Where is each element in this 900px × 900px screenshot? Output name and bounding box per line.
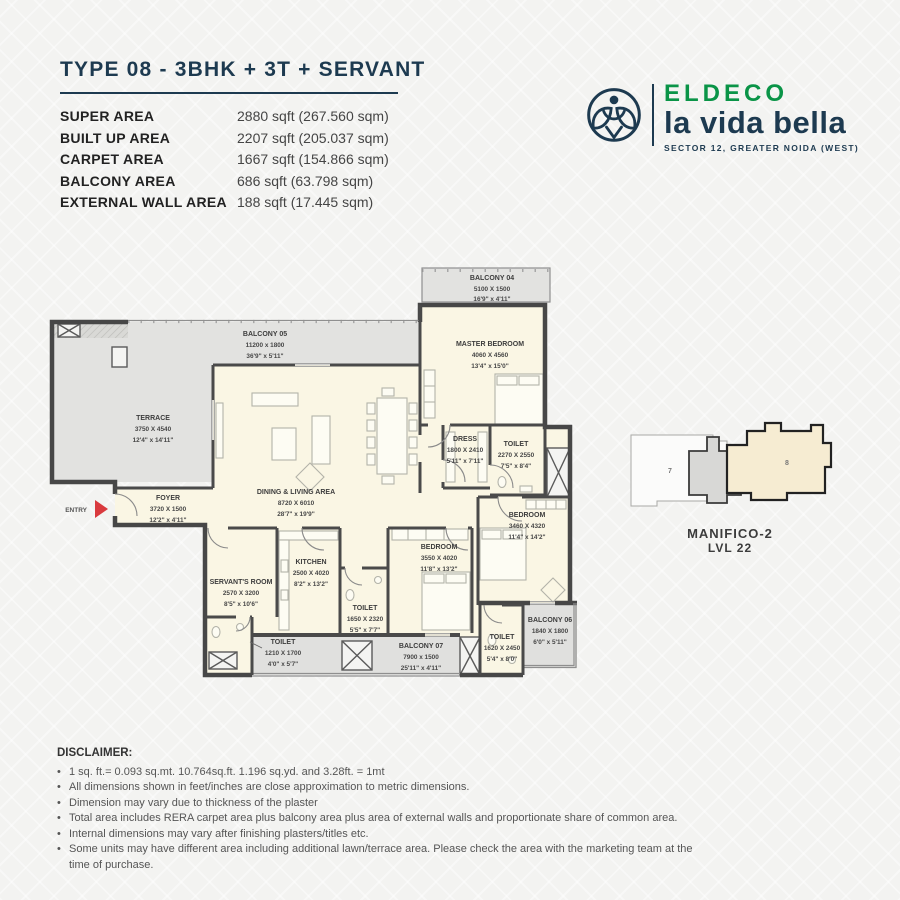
- room-name: TOILET: [504, 441, 529, 448]
- disclaimer-text: Total area includes RERA carpet area plu…: [69, 811, 677, 827]
- logo-tagline: SECTOR 12, GREATER NOIDA (WEST): [664, 143, 859, 153]
- room-dim-mm: 3550 X 4020: [421, 555, 458, 562]
- room-name: SERVANT'S ROOM: [210, 579, 273, 586]
- area-value: 686 sqft (63.798 sqm): [237, 171, 373, 193]
- disclaimer-text: All dimensions shown in feet/inches are …: [69, 780, 469, 796]
- page-title: TYPE 08 - 3BHK + 3T + SERVANT: [60, 58, 425, 82]
- keyplan-unit-8-number: 8: [785, 460, 789, 467]
- room-name: BEDROOM: [509, 512, 546, 519]
- area-label: SUPER AREA: [60, 106, 237, 128]
- room-name: MASTER BEDROOM: [456, 341, 524, 348]
- room-dim-mm: 7900 x 1500: [403, 654, 439, 661]
- disclaimer-text: 1 sq. ft.= 0.093 sq.mt. 10.764sq.ft. 1.1…: [69, 765, 385, 781]
- room-dim-ft: 4'0" x 5'7": [268, 661, 298, 668]
- room-name: BEDROOM: [421, 544, 458, 551]
- room-dim-mm: 1650 X 2320: [347, 616, 384, 623]
- disclaimer-item: •Dimension may vary due to thickness of …: [57, 796, 697, 812]
- area-value: 2207 sqft (205.037 sqm): [237, 128, 389, 150]
- area-row: BUILT UP AREA2207 sqft (205.037 sqm): [60, 128, 480, 150]
- room-dim-mm: 1620 X 2450: [484, 645, 521, 652]
- room-dim-mm: 2270 X 2550: [498, 452, 535, 459]
- disclaimer-heading: DISCLAIMER:: [57, 746, 697, 762]
- room-dim-ft: 36'9" x 5'11": [246, 353, 283, 360]
- room-dim-ft: 13'4" x 15'0": [471, 363, 509, 370]
- room-dim-ft: 8'5" x 10'6": [224, 601, 258, 608]
- area-row: CARPET AREA1667 sqft (154.866 sqm): [60, 149, 480, 171]
- entry-label: ENTRY: [65, 507, 87, 514]
- area-label: BUILT UP AREA: [60, 128, 237, 150]
- room-name: FOYER: [156, 495, 180, 502]
- room-name: TOILET: [271, 639, 296, 646]
- floor-plan: ENTRY BALCONY 05 11200 x 1800 36'9" x 5'…: [40, 250, 600, 700]
- keyplan-unit-8-highlight: [727, 423, 831, 500]
- bullet-icon: •: [57, 842, 69, 873]
- room-name: BALCONY 05: [243, 331, 287, 338]
- room-name: TOILET: [490, 634, 515, 641]
- area-table: SUPER AREA2880 sqft (267.560 sqm) BUILT …: [60, 106, 480, 214]
- disclaimer-text: Internal dimensions may vary after finis…: [69, 827, 369, 843]
- room-dim-mm: 1800 X 2410: [447, 447, 484, 454]
- room-dim-ft: 5'11" x 7'11": [447, 458, 484, 465]
- disclaimer-item: •Total area includes RERA carpet area pl…: [57, 811, 697, 827]
- disclaimer-item: •Some units may have different area incl…: [57, 842, 697, 873]
- room-dim-mm: 1840 X 1800: [532, 628, 569, 635]
- room-dim-ft: 11'4" x 14'2": [508, 534, 545, 541]
- area-value: 1667 sqft (154.866 sqm): [237, 149, 389, 171]
- room-dim-ft: 8'2" x 13'2": [294, 581, 328, 588]
- room-label-terrace: TERRACE 3750 X 4540 12'4" x 14'11": [133, 415, 174, 444]
- entry-marker: ENTRY: [65, 500, 108, 518]
- title-underline: [60, 92, 398, 94]
- key-plan: 7 8 MANIFICO-2 LVL 22: [615, 405, 845, 555]
- area-label: CARPET AREA: [60, 149, 237, 171]
- room-dim-ft: 12'2" x 4'11": [149, 517, 186, 524]
- room-dim-mm: 3750 X 4540: [135, 426, 172, 433]
- logo-brand: ELDECO: [664, 82, 859, 106]
- room-dim-ft: 5'4" x 8'0": [487, 656, 517, 663]
- room-name: BALCONY 04: [470, 275, 514, 282]
- logo-divider: [652, 84, 654, 146]
- room-label-balcony-04: BALCONY 04 5100 X 1500 16'9" x 4'11": [470, 275, 514, 303]
- room-dim-mm: 8720 X 6010: [278, 500, 315, 507]
- room-dim-ft: 5'5" x 7'7": [350, 627, 380, 634]
- room-name: TERRACE: [136, 415, 170, 422]
- area-row: EXTERNAL WALL AREA188 sqft (17.445 sqm): [60, 192, 480, 214]
- lotus-emblem-icon: [584, 82, 644, 151]
- disclaimer-item: •Internal dimensions may vary after fini…: [57, 827, 697, 843]
- room-name: TOILET: [353, 605, 378, 612]
- room-dim-mm: 1210 X 1700: [265, 650, 302, 657]
- area-value: 2880 sqft (267.560 sqm): [237, 106, 389, 128]
- disclaimer-item: •All dimensions shown in feet/inches are…: [57, 780, 697, 796]
- room-name: KITCHEN: [295, 559, 326, 566]
- brochure-page: TYPE 08 - 3BHK + 3T + SERVANT SUPER AREA…: [0, 0, 900, 900]
- room-dim-mm: 3460 X 4320: [509, 523, 546, 530]
- room-dim-ft: 12'4" x 14'11": [133, 437, 174, 444]
- area-label: BALCONY AREA: [60, 171, 237, 193]
- room-dim-mm: 4060 X 4560: [472, 352, 509, 359]
- area-row: SUPER AREA2880 sqft (267.560 sqm): [60, 106, 480, 128]
- room-dim-mm: 3720 X 1500: [150, 506, 187, 513]
- bullet-icon: •: [57, 765, 69, 781]
- logo-name: la vida bella: [664, 106, 859, 140]
- keyplan-unit-7-number: 7: [668, 468, 672, 475]
- area-row: BALCONY AREA686 sqft (63.798 sqm): [60, 171, 480, 193]
- room-dim-mm: 5100 X 1500: [474, 286, 511, 293]
- brand-logo: ELDECO la vida bella SECTOR 12, GREATER …: [584, 82, 864, 162]
- keyplan-level: LVL 22: [615, 541, 845, 555]
- room-label-balcony-05: BALCONY 05 11200 x 1800 36'9" x 5'11": [243, 331, 287, 360]
- room-label-kitchen: KITCHEN 2500 X 4020 8'2" x 13'2": [293, 559, 330, 588]
- disclaimer-text: Some units may have different area inclu…: [69, 842, 697, 873]
- bullet-icon: •: [57, 796, 69, 812]
- room-name: DINING & LIVING AREA: [257, 489, 335, 496]
- room-dim-ft: 6'0" x 5'11": [533, 639, 567, 646]
- room-dim-ft: 7'5" x 8'4": [501, 463, 531, 470]
- bullet-icon: •: [57, 780, 69, 796]
- room-fills: [52, 268, 577, 675]
- room-dim-ft: 16'9" x 4'11": [473, 296, 510, 303]
- room-dim-ft: 11'8" x 13'2": [420, 566, 457, 573]
- room-dim-ft: 25'11" x 4'11": [401, 665, 441, 672]
- room-dim-mm: 11200 x 1800: [246, 342, 285, 349]
- disclaimer-item: •1 sq. ft.= 0.093 sq.mt. 10.764sq.ft. 1.…: [57, 765, 697, 781]
- room-name: BALCONY 07: [399, 643, 443, 650]
- bullet-icon: •: [57, 811, 69, 827]
- room-dim-ft: 28'7" x 19'9": [277, 511, 315, 518]
- room-name: DRESS: [453, 436, 477, 443]
- area-value: 188 sqft (17.445 sqm): [237, 192, 373, 214]
- disclaimer: DISCLAIMER: •1 sq. ft.= 0.093 sq.mt. 10.…: [57, 746, 697, 873]
- room-label-balcony-06: BALCONY 06 1840 X 1800 6'0" x 5'11": [528, 617, 572, 646]
- room-dim-mm: 2570 X 3200: [223, 590, 260, 597]
- room-label-bedroom-2: BEDROOM 3550 X 4020 11'8" x 13'2": [420, 544, 457, 573]
- keyplan-tower-name: MANIFICO-2: [615, 526, 845, 541]
- disclaimer-text: Dimension may vary due to thickness of t…: [69, 796, 318, 812]
- room-name: BALCONY 06: [528, 617, 572, 624]
- entry-arrow-icon: [95, 500, 108, 518]
- key-plan-drawing: 7 8: [615, 405, 845, 517]
- area-label: EXTERNAL WALL AREA: [60, 192, 237, 214]
- room-label-balcony-07: BALCONY 07 7900 x 1500 25'11" x 4'11": [399, 643, 443, 672]
- bullet-icon: •: [57, 827, 69, 843]
- room-label-bedroom-3: BEDROOM 3460 X 4320 11'4" x 14'2": [508, 512, 545, 541]
- room-dim-mm: 2500 X 4020: [293, 570, 330, 577]
